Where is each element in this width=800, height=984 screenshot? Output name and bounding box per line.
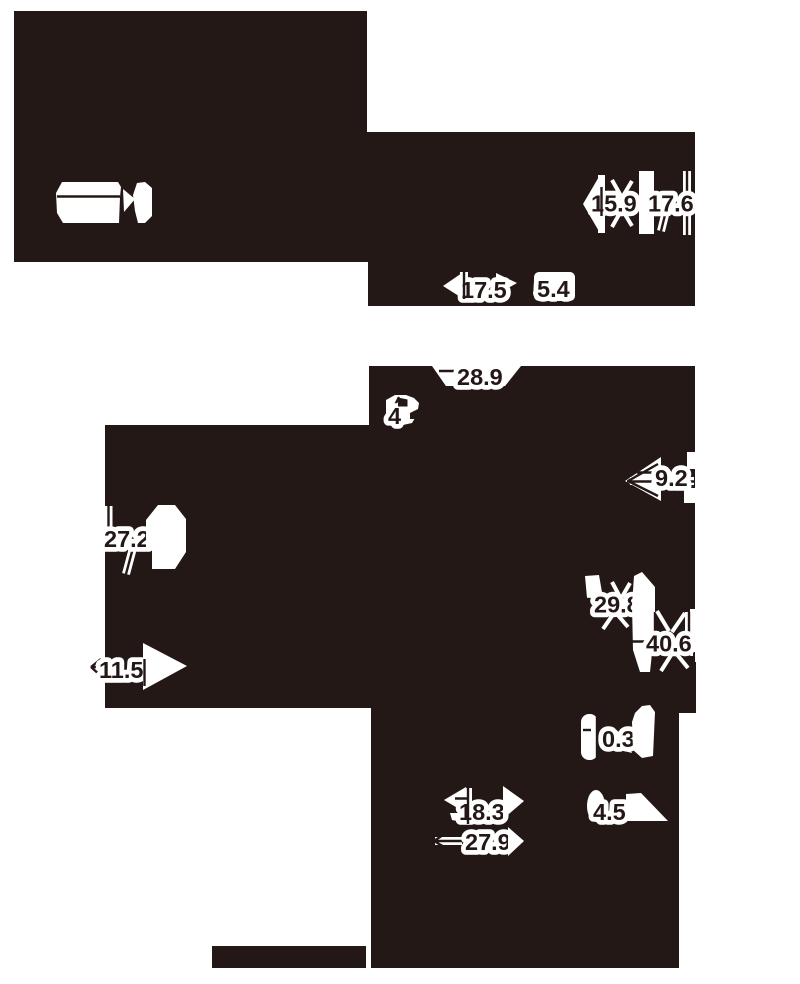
svg-text:15.9: 15.9: [591, 191, 637, 217]
svg-text:28.9: 28.9: [457, 364, 503, 390]
svg-text:27.9: 27.9: [465, 829, 511, 855]
svg-text:40.6: 40.6: [646, 631, 692, 657]
svg-text:5.4: 5.4: [537, 276, 570, 302]
svg-text:17.6: 17.6: [648, 191, 694, 217]
svg-text:17.5: 17.5: [461, 277, 507, 303]
svg-text:4.5: 4.5: [593, 799, 626, 825]
svg-text:11.5: 11.5: [99, 657, 143, 683]
svg-text:18.3: 18.3: [459, 799, 505, 825]
svg-text:9.2: 9.2: [655, 465, 688, 491]
svg-text:0.3: 0.3: [602, 726, 635, 752]
svg-text:27.2: 27.2: [104, 526, 150, 552]
svg-text:4: 4: [388, 403, 401, 429]
